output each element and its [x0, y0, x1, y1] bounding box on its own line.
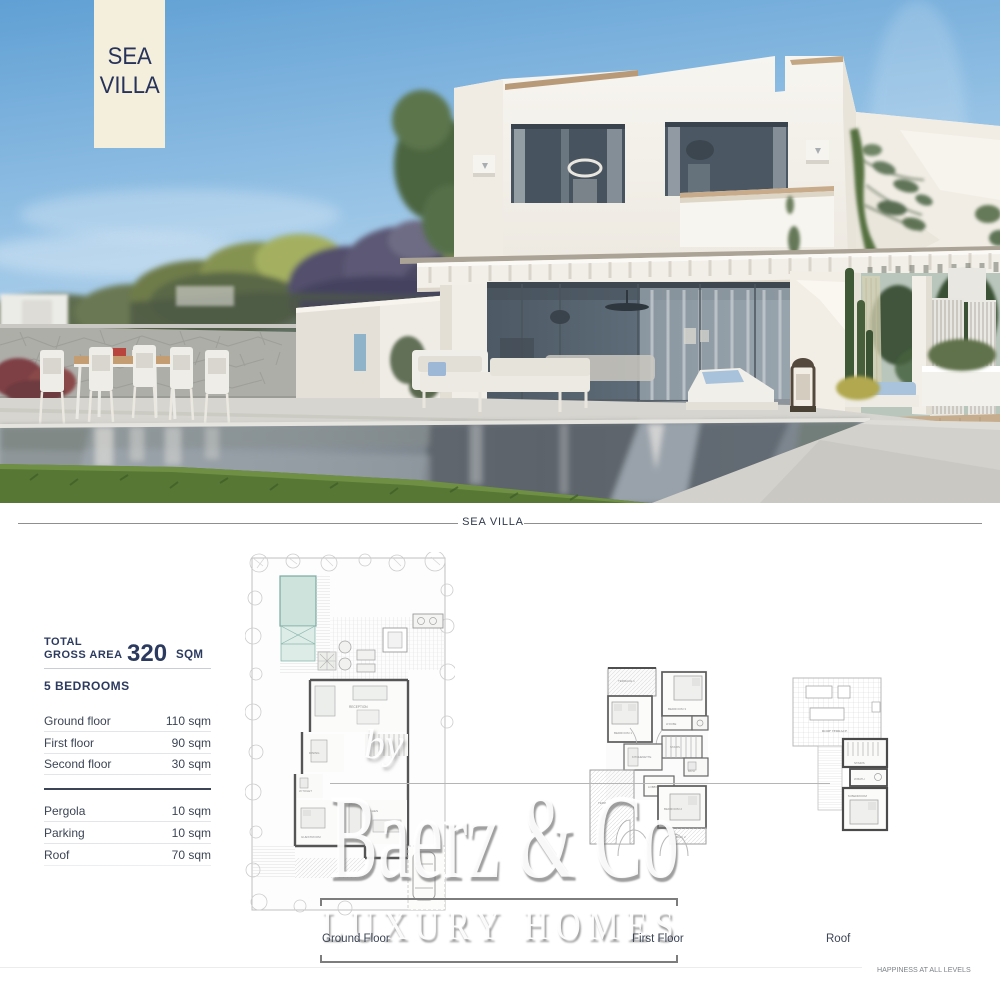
svg-text:M.BEDROOM: M.BEDROOM	[848, 794, 867, 798]
svg-text:TERRACE 1: TERRACE 1	[618, 679, 635, 683]
svg-text:STAIRS: STAIRS	[670, 745, 680, 749]
svg-text:W.ROBE: W.ROBE	[666, 722, 677, 726]
svg-text:W.BATH: W.BATH	[854, 777, 865, 781]
svg-text:ROOF TERRACE: ROOF TERRACE	[822, 729, 847, 733]
svg-text:BEDROOM 3: BEDROOM 3	[668, 707, 686, 711]
svg-text:BATH: BATH	[688, 769, 695, 773]
svg-text:STAIRS: STAIRS	[854, 761, 865, 765]
svg-text:BEDROOM 1: BEDROOM 1	[614, 731, 632, 735]
svg-text:W.TOILET: W.TOILET	[299, 789, 312, 793]
svg-text:RECEPTION: RECEPTION	[349, 705, 368, 709]
svg-text:DINING: DINING	[309, 751, 320, 755]
svg-text:GUESTROOM: GUESTROOM	[301, 835, 321, 839]
svg-text:KITCHENETTE: KITCHENETTE	[632, 755, 652, 759]
